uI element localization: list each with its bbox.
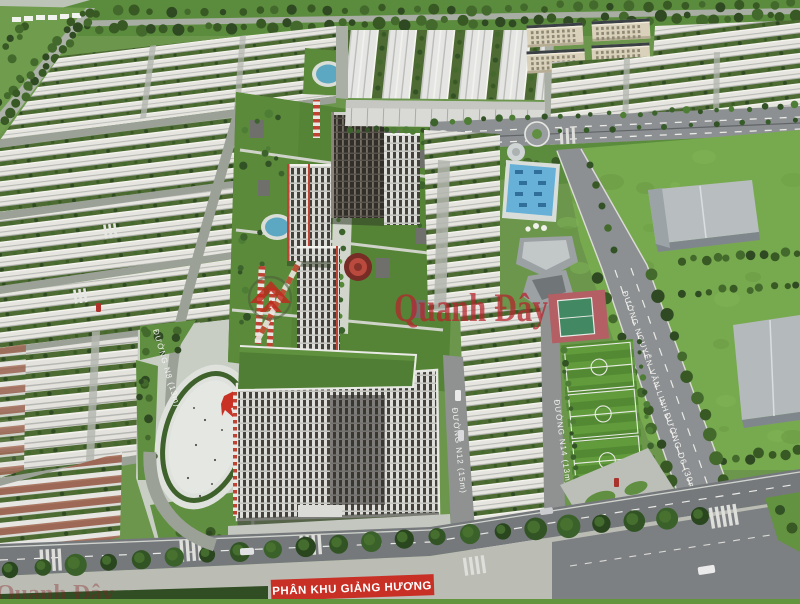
- svg-text:Quanh Đây: Quanh Đây: [0, 581, 114, 599]
- svg-text:Quanh Đây: Quanh Đây: [394, 285, 548, 330]
